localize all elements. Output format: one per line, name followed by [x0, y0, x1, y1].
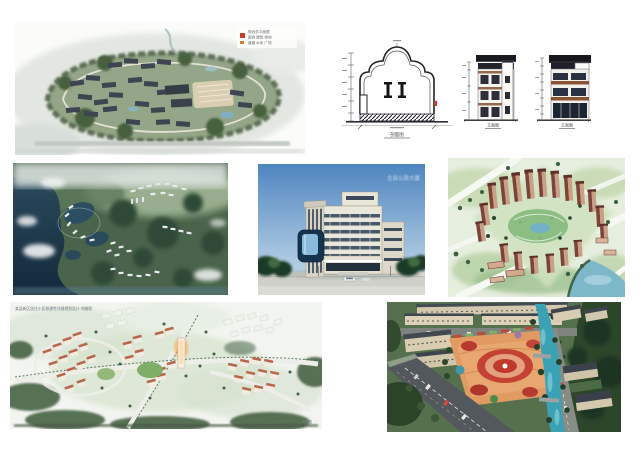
- district-corner-text: 鸟瞰图: [302, 419, 313, 424]
- legend-line-1: 规划总平面图: [248, 29, 270, 34]
- district-plan-graphic: 某县新区居住小区修建性详细规划设计 鸟瞰图 鸟瞰图: [10, 302, 322, 429]
- plaza-aerial-graphic: [387, 302, 621, 432]
- office-watermark-text: 全县公政大厦: [387, 174, 421, 182]
- office-building-graphic: 全县公政大厦: [258, 164, 425, 295]
- elevation-front-caption: 立面图: [487, 122, 499, 128]
- elevation-side-graphic: 立面图: [533, 48, 595, 133]
- elevation-front-graphic: 立面图: [461, 48, 523, 133]
- legend-seal: [240, 33, 245, 38]
- section-caption: 剖面图: [390, 131, 404, 138]
- elevation-side-caption: 立面图: [561, 122, 573, 128]
- district-caption: 某县新区居住小区修建性详细规划设计 鸟瞰图: [15, 306, 92, 311]
- plan-legend: 规划总平面图 图例 建筑 绿地 道路 水系 广场: [237, 26, 297, 48]
- image-office-building: 全县公政大厦: [258, 164, 425, 295]
- image-town-master-plan: 规划总平面图 图例 建筑 绿地 道路 水系 广场: [15, 23, 305, 155]
- image-elevation-front: 立面图: [461, 48, 523, 133]
- residential-towers-graphic: [448, 158, 625, 297]
- image-elevation-side: 立面图: [533, 48, 595, 133]
- document-page: 规划总平面图 图例 建筑 绿地 道路 水系 广场: [0, 0, 640, 450]
- section-drawing-graphic: 剖面图: [340, 35, 455, 140]
- image-lakeside-aerial: [13, 163, 228, 295]
- legend-line-2: 图例 建筑 绿地: [248, 35, 272, 40]
- legend-line-3: 道路 水系 广场: [248, 40, 272, 45]
- image-residential-towers: [448, 158, 625, 297]
- image-section-drawing: 剖面图: [340, 35, 455, 140]
- image-plaza-aerial: [387, 302, 621, 432]
- image-district-plan: 某县新区居住小区修建性详细规划设计 鸟瞰图 鸟瞰图: [10, 302, 322, 429]
- lakeside-aerial-graphic: [13, 163, 228, 295]
- town-master-plan-graphic: 规划总平面图 图例 建筑 绿地 道路 水系 广场: [15, 23, 305, 155]
